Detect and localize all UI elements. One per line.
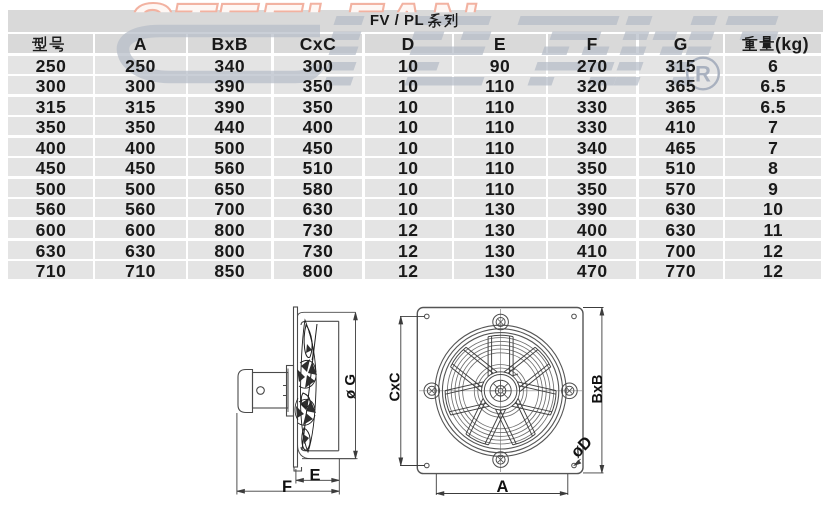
svg-text:F: F	[282, 478, 292, 496]
svg-text:BxB: BxB	[590, 374, 606, 403]
svg-text:ø G: ø G	[342, 374, 359, 399]
svg-text:E: E	[309, 467, 320, 485]
svg-text:A: A	[497, 478, 509, 496]
svg-text:CxC: CxC	[388, 372, 404, 402]
svg-text:øD: øD	[568, 433, 596, 461]
